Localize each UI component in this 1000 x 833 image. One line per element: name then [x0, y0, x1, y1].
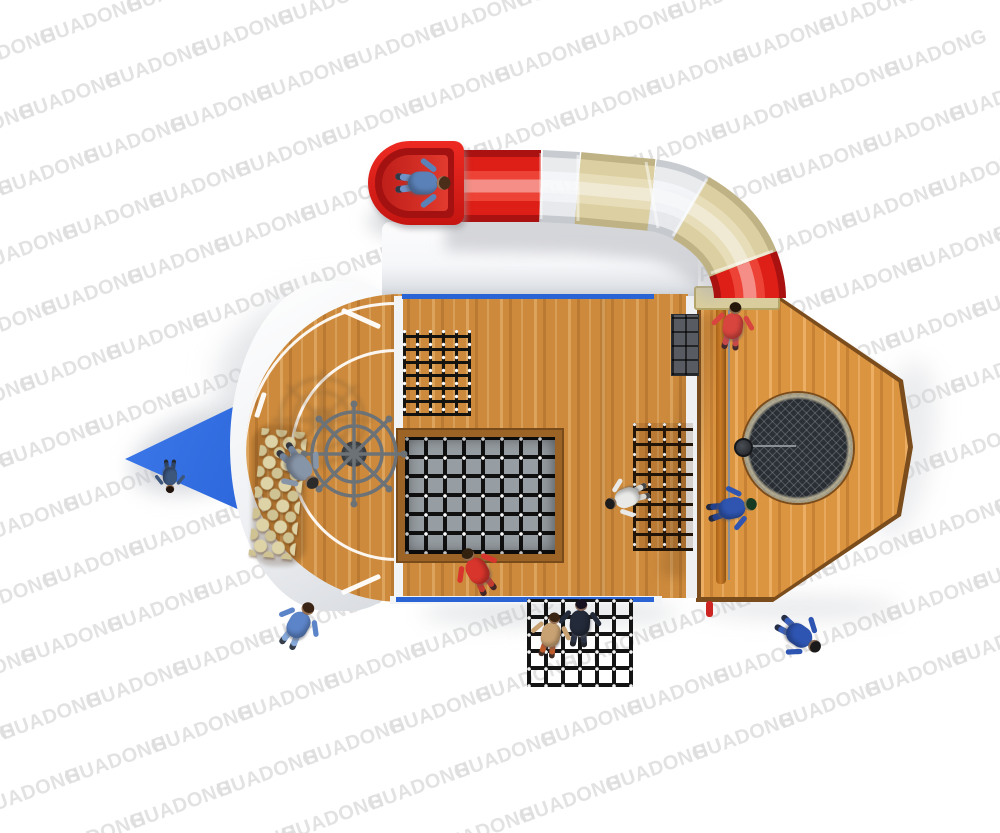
slide-segment-clear-1	[541, 186, 578, 188]
deck-edge-blue-top	[402, 294, 654, 299]
watermark-text: HUADONG	[970, 266, 1000, 324]
hub-link-line	[750, 445, 796, 447]
watermark-text: HUADONG	[579, 0, 687, 57]
watermark-text: HUADONG	[514, 0, 622, 13]
watermark-text: HUADONG	[0, 175, 17, 233]
hull-side-wall	[382, 222, 698, 300]
watermark-text: HUADONG	[947, 69, 1000, 127]
watermark-text: HUADONG	[124, 0, 232, 18]
watermark-text: HUADONG	[0, 415, 105, 473]
rope-net-square	[403, 330, 471, 416]
watermark-text: HUADONG	[665, 0, 773, 26]
watermark-text: HUADONG	[0, 719, 19, 777]
watermark-text: HUADONG	[235, 669, 343, 727]
watermark-text: HUADONG	[0, 763, 84, 821]
watermark-text: HUADONG	[883, 297, 991, 355]
child-on-slide-exit	[396, 163, 451, 202]
watermark-text: HUADONG	[536, 151, 644, 209]
watermark-text: HUADONG	[753, 208, 861, 266]
figure-arm	[786, 649, 803, 655]
watermark-text: HUADONG	[774, 132, 882, 190]
watermark-text: HUADONG	[927, 417, 1000, 475]
watermark-text: HUADONG	[127, 504, 235, 562]
watermark-text: HUADONG	[863, 645, 971, 703]
watermark-text: HUADONG	[817, 0, 925, 39]
round-net-basket	[743, 393, 853, 503]
watermark-text: HUADONG	[517, 771, 625, 829]
watermark-text: HUADONG	[39, 264, 147, 322]
watermark-text: HUADONG	[0, 0, 81, 5]
watermark-text: HUADONG	[971, 538, 1000, 596]
climb-grid-small	[671, 314, 699, 376]
watermark-text: HUADONG	[839, 177, 947, 235]
watermark-text: HUADONG	[690, 708, 798, 766]
watermark-text: HUADONG	[62, 732, 170, 790]
watermark-text: HUADONG	[0, 688, 106, 746]
watermark-text: HUADONG	[882, 25, 990, 83]
slide-segment-clear-2	[652, 195, 691, 208]
watermark-text: HUADONG	[452, 726, 560, 784]
watermark-text: HUADONG	[233, 125, 341, 183]
watermark-text: HUADONG	[731, 12, 839, 70]
figure-head	[437, 176, 451, 190]
watermark-text: HUADONG	[214, 745, 322, 803]
watermark-text: HUADONG	[471, 106, 579, 164]
slide-segment-beige-1	[578, 188, 652, 195]
watermark-text: HUADONG	[0, 643, 41, 701]
watermark-text: HUADONG	[40, 536, 148, 594]
watermark-text: HUADONG	[168, 81, 276, 139]
watermark-text: HUADONG	[322, 638, 430, 696]
watermark-text: HUADONG	[341, 18, 449, 76]
watermark-text: HUADONG	[623, 119, 731, 177]
watermark-text: HUADONG	[0, 99, 38, 157]
watermark-text: HUADONG	[149, 700, 257, 758]
watermark-text: HUADONG	[991, 190, 1000, 248]
watermark-text: HUADONG	[0, 143, 103, 201]
figure-body	[408, 172, 438, 195]
watermark-text: HUADONG	[38, 0, 146, 50]
watermark-text: HUADONG	[170, 625, 278, 683]
watermark-text: HUADONG	[493, 31, 601, 89]
watermark-text: HUADONG	[366, 758, 474, 816]
watermark-text: HUADONG	[992, 462, 1000, 520]
watermark-text: HUADONG	[60, 188, 168, 246]
watermark-text: HUADONG	[0, 219, 82, 277]
slide-segment-beige-2	[691, 208, 743, 264]
watermark-text: HUADONG	[406, 62, 514, 120]
watermark-text: HUADONG	[906, 493, 1000, 551]
watermark-text: HUADONG	[427, 0, 535, 44]
watermark-text: HUADONG	[644, 43, 752, 101]
watermark-text: HUADONG	[82, 112, 190, 170]
watermark-text: HUADONG	[105, 580, 213, 638]
watermark-text: HUADONG	[903, 0, 1000, 7]
watermark-text: HUADONG	[387, 682, 495, 740]
watermark-text: HUADONG	[104, 308, 212, 366]
figure-head	[575, 599, 588, 612]
figure-head	[166, 485, 174, 493]
deck-seam	[600, 296, 608, 596]
watermark-text: HUADONG	[0, 447, 18, 505]
watermark-text: HUADONG	[128, 776, 236, 833]
watermark-text: HUADONG	[709, 88, 817, 146]
watermark-text: HUADONG	[625, 663, 733, 721]
watermark-text: HUADONG	[539, 695, 647, 753]
figure-body	[569, 609, 591, 636]
watermark-text: HUADONG	[777, 676, 885, 734]
watermark-text: HUADONG	[301, 713, 409, 771]
watermark-text: HUADONG	[147, 156, 255, 214]
watermark-text: HUADONG	[818, 253, 926, 311]
watermark-text: HUADONG	[41, 808, 149, 833]
watermark-text: HUADONG	[796, 56, 904, 114]
watermark-text: HUADONG	[949, 613, 1000, 671]
figure-body	[721, 312, 744, 341]
watermark-text: HUADONG	[0, 567, 62, 625]
watermark-text: HUADONG	[212, 201, 320, 259]
mast-hub	[734, 438, 753, 457]
watermark-text: HUADONG	[84, 656, 192, 714]
watermark-text: HUADONG	[688, 164, 796, 222]
watermark-text: HUADONG	[193, 821, 301, 833]
watermark-text: HUADONG	[279, 789, 387, 833]
watermark-text: HUADONG	[0, 23, 60, 81]
figure-body	[163, 467, 177, 485]
watermark-text: HUADONG	[905, 221, 1000, 279]
watermark-text: HUADONG	[431, 802, 539, 833]
watermark-text: HUADONG	[558, 75, 666, 133]
watermark-text: HUADONG	[18, 340, 126, 398]
watermark-text: HUADONG	[0, 491, 83, 549]
watermark-text: HUADONG	[276, 0, 384, 31]
watermark-text: HUADONG	[255, 49, 363, 107]
watermark-text: HUADONG	[884, 569, 992, 627]
child-stern-top	[713, 299, 753, 351]
watermark-text: HUADONG	[19, 612, 127, 670]
figure-head	[729, 301, 743, 315]
watermark-text: HUADONG	[189, 5, 297, 63]
figure-arm	[311, 620, 319, 637]
watermark-text: HUADONG	[926, 145, 1000, 203]
watermark-text: HUADONG	[948, 341, 1000, 399]
watermark-text: HUADONG	[604, 739, 712, 797]
stern-post	[706, 601, 713, 617]
figure-arm	[457, 566, 465, 583]
child-at-sail-tip	[158, 460, 182, 494]
watermark-text: HUADONG	[125, 232, 233, 290]
watermark-text: HUADONG	[103, 36, 211, 94]
watermark-text: HUADONG	[17, 68, 125, 126]
playground-render: HUADONGHUADONGHUADONGHUADONGHUADONGHUADO…	[0, 0, 1000, 833]
watermark-text: HUADONG	[0, 371, 39, 429]
figure-arm	[313, 452, 319, 470]
watermark-text: HUADONG	[0, 295, 61, 353]
watermark-text: HUADONG	[861, 101, 969, 159]
